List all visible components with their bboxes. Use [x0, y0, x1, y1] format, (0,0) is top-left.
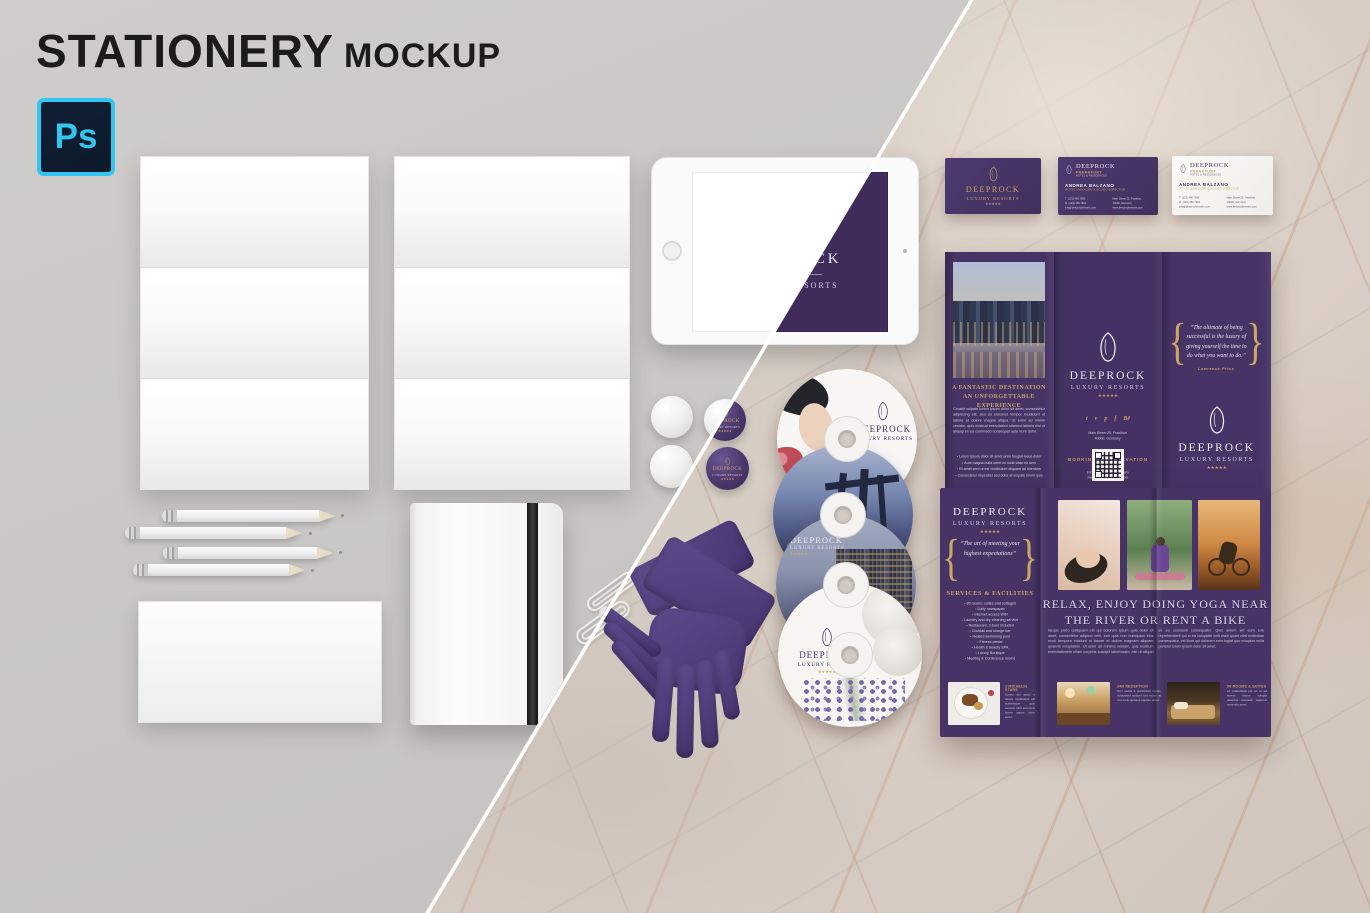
- photo-bedroom: [1167, 682, 1220, 725]
- page-title: STATIONERYMOCKUP: [36, 24, 501, 78]
- contact-column-right: Main Street 25, Frankfurt40000, Germanyw…: [1113, 197, 1156, 210]
- brace-left: {: [1168, 312, 1186, 371]
- michelin-caption: 2 MICHELIN STARS: [1005, 685, 1035, 692]
- photo-massage: [1058, 500, 1120, 590]
- pencil-eraser: [125, 527, 140, 539]
- photo-water-reflection: [953, 352, 1045, 378]
- paper-fold-section: [141, 267, 368, 378]
- card-subline-text: HOTEL & RESIDENCES: [1190, 174, 1252, 177]
- cd-hub: [824, 416, 870, 462]
- photo-shape: [1057, 713, 1110, 725]
- services-list: 80 rooms, suites and cottagesDaily newsp…: [946, 601, 1034, 661]
- branded-pin-badge: DEEPROCK LUXURY RESORTS ★★★★★: [706, 447, 749, 490]
- rooms-caption: 50 ROOMS & SUITES: [1227, 685, 1267, 689]
- brochure-inside: DEEPROCK LUXURY RESORTS ★★★★★ { } “The a…: [940, 488, 1271, 737]
- business-card-purple-detail: DEEPROCK FRANKFURT HOTEL & RESIDENCES AN…: [1058, 157, 1158, 215]
- quote-block: { } “The ultimate of being successful is…: [1166, 324, 1266, 371]
- pencil-body: [178, 547, 317, 559]
- business-card-front: DEEPROCK LUXURY RESORTS ★★★★★: [945, 158, 1041, 214]
- spread-body-text: Neque porro quisquam est qui dolorem ips…: [1048, 628, 1264, 655]
- panel-body-text: Curabit vulpate lorem ipsum dolor sit am…: [953, 406, 1045, 434]
- brace-right: }: [1246, 312, 1264, 371]
- pinterest-icon: p: [1104, 416, 1107, 422]
- list-item: info@deeprockresorts.com: [1179, 205, 1222, 209]
- rock-logo-icon: [1095, 330, 1121, 364]
- brochure-spread-activities: RELAX, ENJOY DOING YOGA NEAR THE RIVER O…: [1040, 488, 1271, 737]
- rock-logo-icon: [1065, 164, 1073, 175]
- contact-column-left: T. (123) 456 7890M. (123) 456 7891info@d…: [1065, 197, 1108, 210]
- headline-line: RELAX, ENJOY DOING YOGA NEAR: [1040, 596, 1271, 612]
- behance-icon: Bē: [1123, 416, 1130, 422]
- list-item: Meeting & Conference rooms: [946, 656, 1034, 661]
- cd-hole: [834, 506, 852, 524]
- blank-envelope: [138, 601, 382, 723]
- pencil-lead-dot: [339, 551, 342, 554]
- card-tagline-text: LUXURY RESORTS: [967, 196, 1020, 201]
- pencil: [125, 527, 302, 539]
- pencil: [163, 547, 333, 559]
- photo-shape: [1087, 686, 1095, 694]
- pencil-lead-dot: [309, 532, 312, 535]
- rock-logo-icon: [724, 456, 731, 466]
- pencil-body: [140, 527, 286, 539]
- photo-shape: [1174, 702, 1188, 709]
- rock-logo-icon: [875, 400, 891, 422]
- brochure-brand-text: DEEPROCK: [1178, 442, 1255, 454]
- twitter-icon: t: [1086, 416, 1088, 422]
- pencil-body: [177, 510, 319, 522]
- services-heading: SERVICES & FACILITIES: [940, 590, 1040, 597]
- panel-body: Curabit vulpate lorem ipsum dolor sit am…: [953, 406, 1045, 450]
- photo-shape: [1232, 558, 1250, 576]
- pencil-eraser: [163, 547, 178, 559]
- quote-block: { } “The art of meeting your highest exp…: [940, 540, 1040, 559]
- photo-shape: [1151, 544, 1169, 572]
- cd-hole: [838, 430, 856, 448]
- rock-logo-icon: [1179, 163, 1187, 174]
- address-line: 40000, Germany: [1054, 436, 1163, 441]
- brochure-tagline-text: LUXURY RESORTS: [953, 521, 1027, 527]
- brochure-brand-text: DEEPROCK: [1070, 370, 1147, 382]
- card-brand-text: DEEPROCK: [966, 185, 1020, 194]
- photo-cyclist: [1198, 500, 1260, 590]
- photo-lavender: [801, 678, 905, 721]
- card-stars: ★★★★★: [985, 203, 1001, 207]
- list-item: Consectetur imperdiet sed dolor et vulpa…: [953, 473, 1045, 478]
- photo-shape: [988, 690, 994, 696]
- list-item: www.deeprockresorts.com: [1113, 206, 1156, 210]
- photo-shape: [1076, 548, 1100, 568]
- brochure-brand-text: DEEPROCK: [953, 506, 1027, 518]
- rooms-caption-block: 50 ROOMS & SUITES At malesuada est an ut…: [1227, 685, 1267, 730]
- brochure-stars: ★★★★★: [980, 530, 1000, 535]
- paper-fold-section: [395, 157, 629, 267]
- contact-column-left: T. (123) 456 7890M. (123) 456 7891info@d…: [1179, 196, 1222, 209]
- paper-fold-section: [395, 267, 629, 378]
- blank-trifold-paper-2: [394, 156, 630, 490]
- brochure-tagline-text: LUXURY RESORTS: [1180, 457, 1254, 463]
- qr-eye: [1095, 452, 1102, 459]
- blank-pin-badge: [651, 396, 693, 438]
- cd-tagline-text: LUXURY RESORTS: [790, 546, 844, 551]
- tablet-home-button: [662, 241, 682, 261]
- stationery-mockup-canvas: STATIONERYMOCKUP Ps: [0, 0, 1370, 913]
- pencil: [162, 510, 335, 522]
- pencil-tip: [319, 510, 335, 522]
- title-main: STATIONERY: [36, 25, 334, 77]
- brochure-panel-services: DEEPROCK LUXURY RESORTS ★★★★★ { } “The a…: [940, 488, 1040, 737]
- photo-shape: [1065, 688, 1075, 698]
- notebook-elastic-band: [527, 503, 538, 725]
- brace-right: }: [1020, 528, 1038, 587]
- card-brand-text: DEEPROCK: [1190, 162, 1252, 169]
- heading-line: A FANTASTIC DESTINATION: [949, 384, 1049, 393]
- rock-logo-icon: [987, 165, 1000, 183]
- card-person-name: ANDREA BALZANO: [1179, 182, 1269, 187]
- qr-eye: [1095, 471, 1102, 478]
- pencil-lead-dot: [311, 569, 314, 572]
- bullet-list: Lorem ipsum dolor sit amet enim feugiat …: [953, 454, 1045, 478]
- spread-body-wrap: Neque porro quisquam est qui dolorem ips…: [1048, 628, 1264, 680]
- headline-line: THE RIVER OR RENT A BIKE: [1040, 612, 1271, 628]
- paper-fold-section: [141, 157, 368, 267]
- michelin-caption-block: 2 MICHELIN STARS Donec dui quod a dolore…: [1005, 685, 1035, 737]
- card-person-role: HOTEL MANAGER & BOARD DIRECTOR: [1179, 188, 1269, 191]
- brace-left: {: [942, 528, 960, 587]
- card-subline-text: HOTEL & RESIDENCES: [1076, 175, 1138, 178]
- quote-text: “The art of meeting your highest expecta…: [958, 540, 1022, 559]
- reception-caption: 24H RECEPTION: [1117, 685, 1161, 689]
- cover-brand-column: DEEPROCK LUXURY RESORTS ★★★★★: [1162, 404, 1271, 471]
- pin-brand-text: DEEPROCK: [713, 467, 743, 472]
- qr-pattern: [1095, 452, 1121, 478]
- photo-michelin-dish: [948, 682, 1000, 725]
- card-contacts: T. (123) 456 7890M. (123) 456 7891info@d…: [1065, 197, 1155, 215]
- qr-eye: [1114, 452, 1121, 459]
- rock-logo-icon: [1205, 404, 1229, 436]
- photoshop-badge: Ps: [37, 98, 115, 176]
- card-contacts: T. (123) 456 7890M. (123) 456 7891info@d…: [1179, 196, 1269, 215]
- panel-bullets: Lorem ipsum dolor sit amet enim feugiat …: [953, 454, 1045, 486]
- reception-caption-block: 24H RECEPTION Orci sodipi it auctoribus …: [1117, 685, 1161, 721]
- business-card-white-detail: DEEPROCK FRANKFURT HOTEL & RESIDENCES AN…: [1172, 156, 1273, 215]
- pin-stars: ★★★★★: [718, 430, 731, 433]
- cd-hub: [820, 492, 866, 538]
- list-item: Et amet sem ut est vestibulum aliquam ad…: [953, 467, 1045, 472]
- card-person-role: HOTEL MANAGER & BOARD DIRECTOR: [1065, 189, 1155, 192]
- brochure-outside: A FANTASTIC DESTINATION AN UNFORGETTABLE…: [945, 252, 1271, 489]
- photo-frankfurt-skyline: [953, 262, 1045, 378]
- list-item: www.deeprockresorts.com: [1227, 205, 1270, 209]
- paper-fold-section: [395, 378, 629, 489]
- qr-code: [1092, 449, 1124, 481]
- pencil-tip: [286, 527, 302, 539]
- card-header: DEEPROCK FRANKFURT HOTEL & RESIDENCES: [1065, 163, 1138, 184]
- list-item: info@deeprockresorts.com: [1065, 206, 1108, 210]
- social-icons-row: tvpfBē: [1083, 407, 1134, 425]
- pencil-eraser: [162, 510, 177, 522]
- card-city-block: FRANKFURT HOTEL & RESIDENCES: [1076, 171, 1138, 178]
- card-person-name: ANDREA BALZANO: [1065, 183, 1155, 188]
- contact-column-right: Main Street 25, Frankfurt40000, Germanyw…: [1227, 196, 1270, 209]
- spread-headline: RELAX, ENJOY DOING YOGA NEAR THE RIVER O…: [1040, 596, 1271, 628]
- pencil: [133, 564, 305, 576]
- card-brand-text: DEEPROCK: [1076, 163, 1138, 170]
- quote-text: “The ultimate of being successful is the…: [1184, 324, 1248, 361]
- brochure-panel-destination: A FANTASTIC DESTINATION AN UNFORGETTABLE…: [945, 252, 1054, 489]
- services-list-wrap: 80 rooms, suites and cottagesDaily newsp…: [946, 601, 1034, 677]
- cd-hole: [837, 576, 855, 594]
- card-header: DEEPROCK FRANKFURT HOTEL & RESIDENCES: [1179, 162, 1252, 183]
- address-line: Main Street 25, Frankfurt: [1054, 431, 1163, 436]
- card-city-block: FRANKFURT HOTEL & RESIDENCES: [1190, 170, 1252, 177]
- rooms-text: At malesuada est an ut ea autem neque vo…: [1227, 690, 1267, 708]
- notebook: [410, 503, 563, 725]
- photo-reception: [1057, 682, 1110, 725]
- blank-trifold-paper-1: [140, 156, 369, 490]
- list-item: Aute magna nulla amet mi nulla vitae eu …: [953, 460, 1045, 465]
- pencil-tip: [317, 547, 333, 559]
- pencil-tip: [289, 564, 305, 576]
- cd-hub: [827, 632, 873, 678]
- photo-lights: [953, 322, 1045, 345]
- pencil-lead-dot: [341, 514, 344, 517]
- cd-hub: [823, 562, 869, 608]
- list-item: Lorem ipsum dolor sit amet enim feugiat …: [953, 454, 1045, 459]
- tablet-camera-dot: [903, 249, 907, 253]
- vimeo-icon: v: [1095, 416, 1098, 422]
- brochure-panel-cover: { } “The ultimate of being successful is…: [1162, 252, 1271, 489]
- pencil-body: [148, 564, 289, 576]
- cd-stars: ★★★★★: [790, 552, 808, 556]
- photo-yoga: [1127, 500, 1192, 590]
- reception-text: Orci sodipi it auctoribus harum vulputat…: [1117, 690, 1161, 704]
- photo-towel: [873, 626, 922, 676]
- cd-hole: [841, 646, 859, 664]
- brochure-tagline-text: LUXURY RESORTS: [1071, 385, 1145, 391]
- facebook-icon: f: [1114, 416, 1116, 422]
- photoshop-icon: Ps: [55, 117, 98, 157]
- pin-stars: ★★★★★: [721, 478, 734, 481]
- pencil-eraser: [133, 564, 148, 576]
- glove-finger: [676, 664, 695, 758]
- photo-shape: [1156, 537, 1165, 546]
- title-sub: MOCKUP: [344, 37, 501, 75]
- paper-fold-section: [141, 378, 368, 489]
- photo-shape: [974, 702, 983, 710]
- brochure-stars: ★★★★★: [1098, 394, 1118, 399]
- brochure-panel-contact: DEEPROCK LUXURY RESORTS ★★★★★ tvpfBē Mai…: [1054, 252, 1163, 489]
- michelin-text: Donec dui quod a dolore vestibulum elit …: [1005, 693, 1035, 720]
- photo-shape: [1135, 573, 1185, 580]
- brochure-stars: ★★★★★: [1207, 466, 1227, 471]
